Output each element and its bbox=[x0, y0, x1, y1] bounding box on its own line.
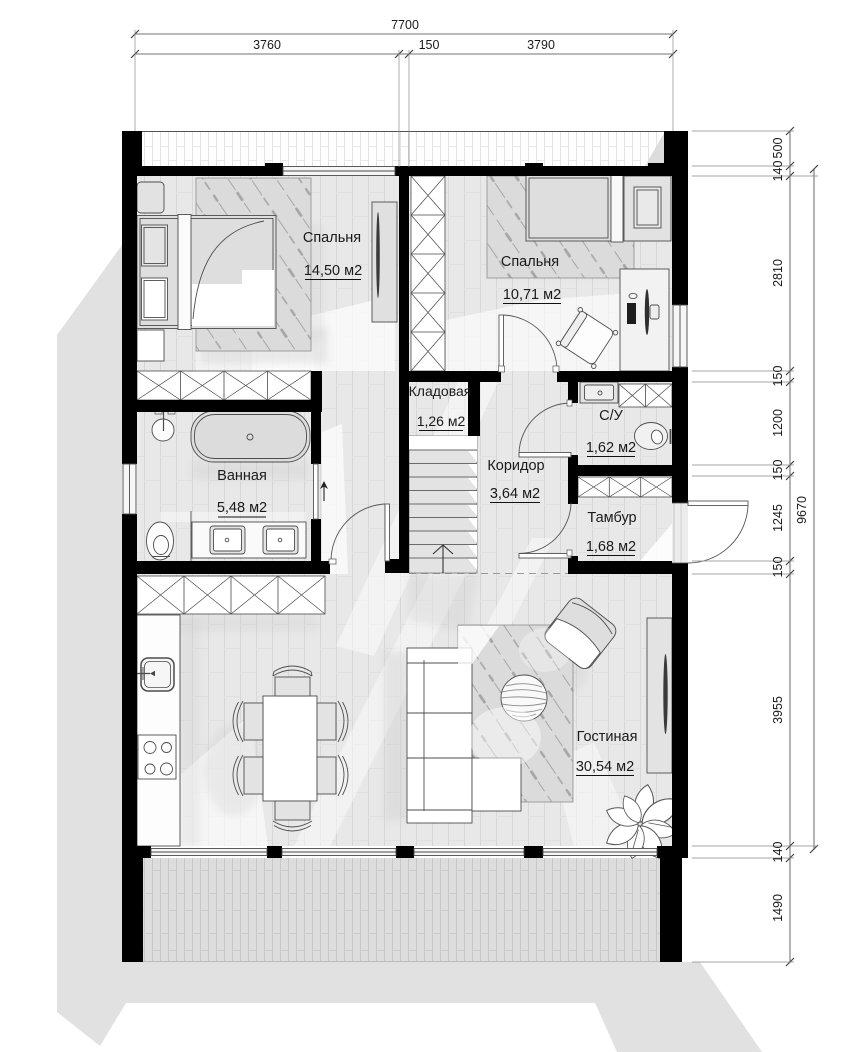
svg-text:3955: 3955 bbox=[771, 696, 785, 724]
svg-text:Спальня: Спальня bbox=[303, 230, 361, 246]
svg-text:5,48 м2: 5,48 м2 bbox=[217, 500, 267, 516]
svg-text:Гостиная: Гостиная bbox=[577, 729, 638, 745]
svg-text:10,71 м2: 10,71 м2 bbox=[503, 287, 561, 303]
svg-text:1,68 м2: 1,68 м2 bbox=[586, 539, 636, 555]
svg-text:Кладовая: Кладовая bbox=[409, 383, 472, 399]
svg-text:1,26 м2: 1,26 м2 bbox=[417, 413, 466, 429]
svg-text:Ванная: Ванная bbox=[217, 468, 267, 484]
svg-text:Тамбур: Тамбур bbox=[587, 510, 636, 526]
svg-text:1490: 1490 bbox=[771, 894, 785, 922]
svg-text:150: 150 bbox=[771, 366, 785, 387]
svg-text:С/У: С/У bbox=[599, 408, 624, 424]
svg-text:9670: 9670 bbox=[795, 496, 809, 524]
svg-text:3790: 3790 bbox=[527, 38, 555, 52]
svg-text:1200: 1200 bbox=[771, 409, 785, 437]
svg-text:140: 140 bbox=[771, 161, 785, 182]
svg-text:150: 150 bbox=[771, 557, 785, 578]
svg-text:3760: 3760 bbox=[253, 38, 281, 52]
svg-text:1245: 1245 bbox=[771, 504, 785, 532]
svg-text:500: 500 bbox=[771, 138, 785, 159]
svg-text:150: 150 bbox=[419, 38, 440, 52]
svg-text:7700: 7700 bbox=[391, 18, 419, 32]
svg-text:Коридор: Коридор bbox=[487, 458, 544, 474]
svg-text:30,54 м2: 30,54 м2 bbox=[576, 759, 634, 775]
svg-text:2810: 2810 bbox=[771, 259, 785, 287]
svg-text:Спальня: Спальня bbox=[501, 254, 559, 270]
svg-text:1,62 м2: 1,62 м2 bbox=[586, 440, 636, 456]
svg-text:150: 150 bbox=[771, 460, 785, 481]
svg-text:140: 140 bbox=[771, 842, 785, 863]
svg-text:14,50 м2: 14,50 м2 bbox=[304, 263, 362, 279]
svg-text:3,64 м2: 3,64 м2 bbox=[490, 486, 540, 502]
